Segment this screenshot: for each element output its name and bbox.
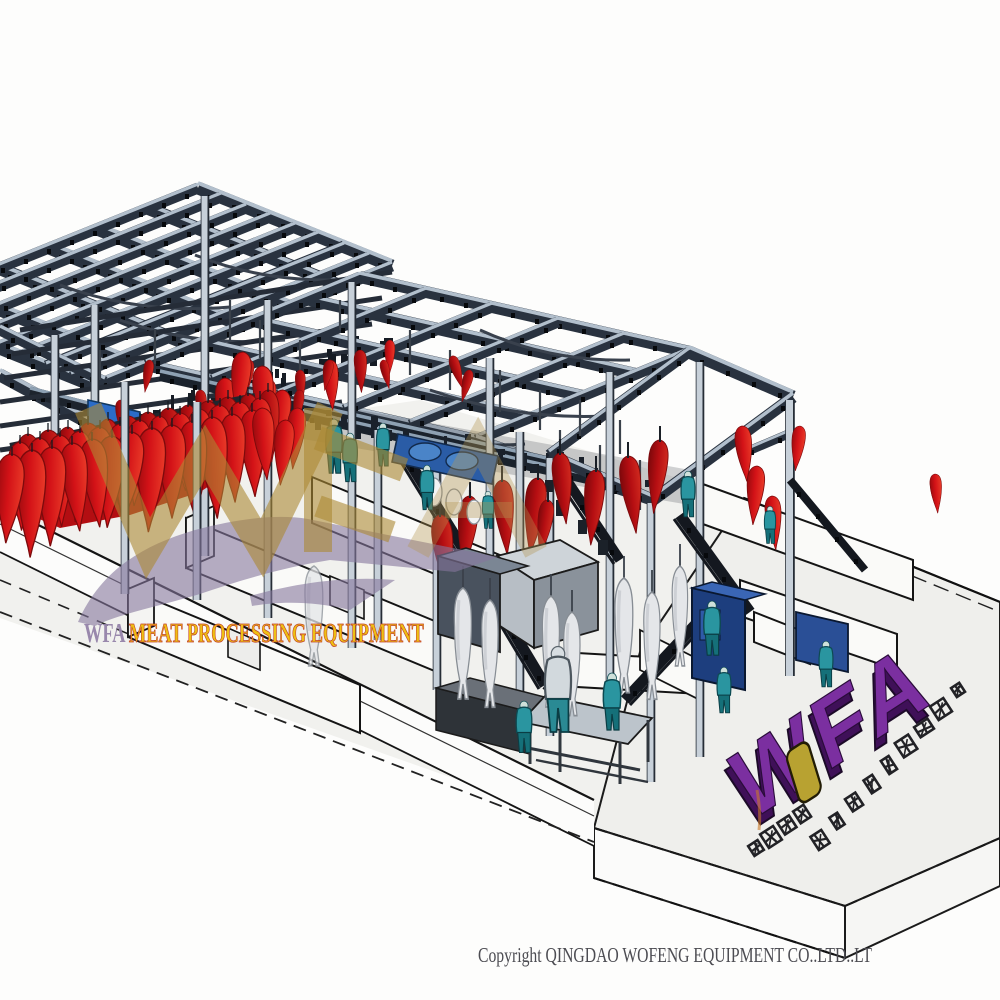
svg-text:MEAT PROCESSING EQUIPMENT: MEAT PROCESSING EQUIPMENT <box>129 617 425 647</box>
svg-text:Copyright QINGDAO WOFENG EQUI: Copyright QINGDAO WOFENG EQUIPMENT CO..L… <box>478 944 872 968</box>
svg-text:WFA: WFA <box>84 617 126 647</box>
